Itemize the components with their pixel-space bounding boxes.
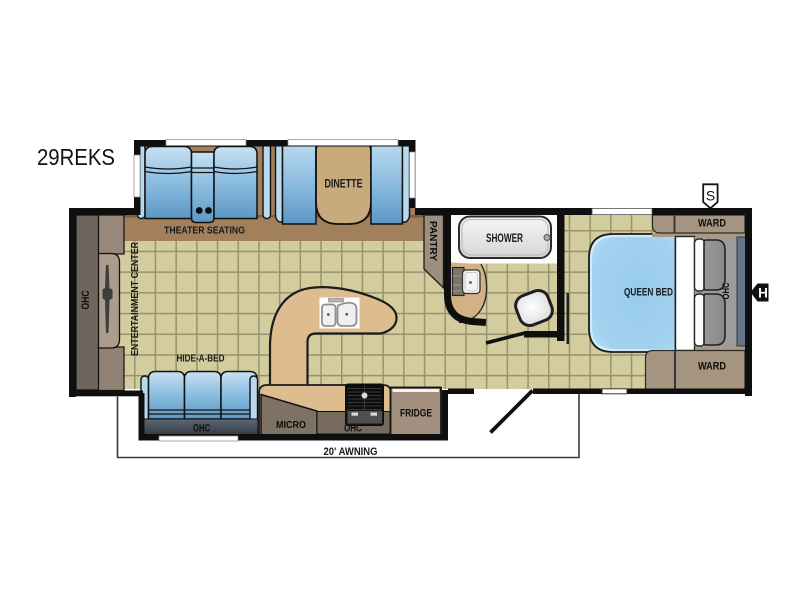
svg-text:OHC: OHC: [80, 290, 92, 309]
svg-text:OHC: OHC: [193, 423, 210, 435]
svg-text:WARD: WARD: [698, 361, 726, 373]
svg-text:FRIDGE: FRIDGE: [400, 408, 432, 420]
svg-text:H: H: [758, 285, 768, 300]
svg-text:OHC: OHC: [721, 282, 732, 299]
svg-text:QUEEN BED: QUEEN BED: [624, 286, 673, 298]
svg-text:DINETTE: DINETTE: [325, 179, 363, 191]
svg-text:S: S: [706, 187, 715, 203]
svg-text:THEATER SEATING: THEATER SEATING: [164, 225, 245, 237]
svg-text:PANTRY: PANTRY: [427, 221, 438, 261]
svg-text:29REKS: 29REKS: [37, 144, 115, 170]
svg-text:SHOWER: SHOWER: [486, 233, 523, 245]
svg-text:ENTERTAINMENT CENTER: ENTERTAINMENT CENTER: [129, 242, 141, 356]
svg-text:WARD: WARD: [698, 218, 726, 230]
svg-text:20' AWNING: 20' AWNING: [324, 446, 378, 458]
svg-text:HIDE-A-BED: HIDE-A-BED: [177, 353, 225, 365]
svg-text:MICRO: MICRO: [276, 419, 306, 431]
